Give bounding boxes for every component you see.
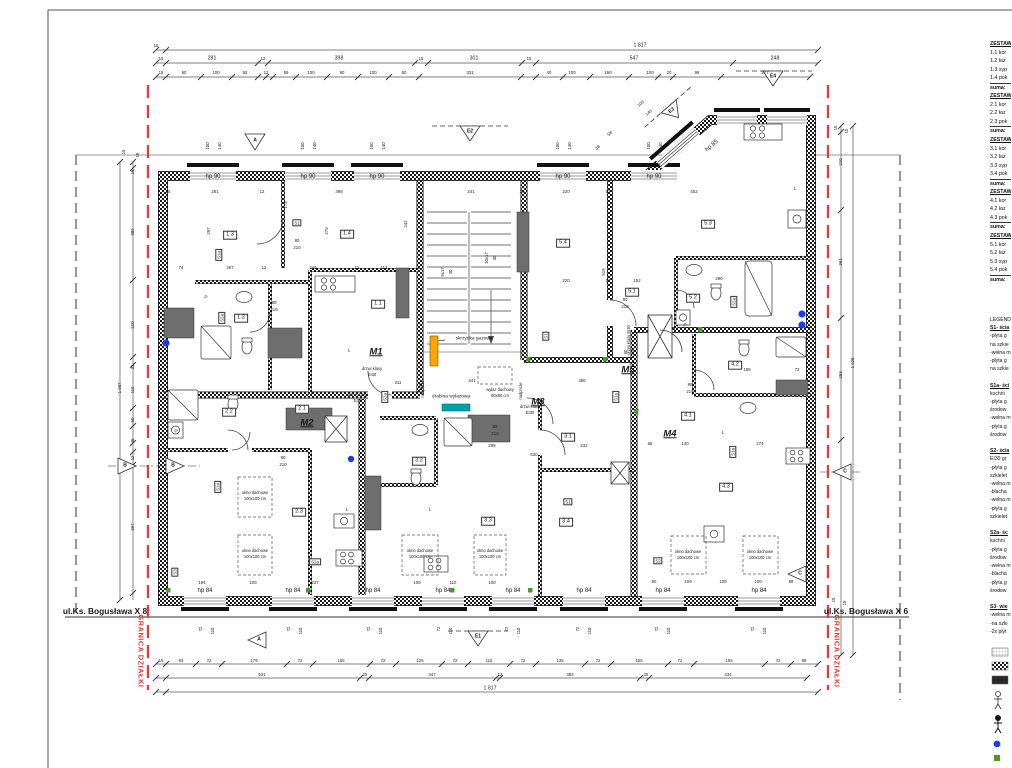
panel-line: S1- ścia [990,324,1011,332]
kitchen-sink [334,514,354,528]
panel-line: -wełna m [990,496,1011,504]
shower [201,326,231,359]
panel-line: środow [990,587,1011,595]
panel-line: S2a- śc [990,529,1011,537]
panel-line: 1.3 syp [990,66,1011,75]
panel-line: 5.2 łaz [990,249,1011,258]
panel-line: 1.4 pok [990,74,1011,83]
toilet [711,284,721,300]
panel-line: -wełna m [990,480,1011,488]
boundary-label-left: GRANICA DZIAŁKI [137,615,144,688]
panel-line: -2x płyt [990,628,1011,636]
shower [444,418,472,446]
panel-line: -płyta g [990,398,1011,406]
panel-line: 3.4 pok [990,170,1011,179]
panel-line: S2- ścia [990,447,1011,455]
panel-line: 3.3 syp [990,162,1011,171]
washbasin [686,265,702,276]
panel-line: 1.1 kor [990,49,1011,58]
washbasin [236,292,252,303]
toilet [739,340,749,356]
panel-line: 1.2 łaz [990,57,1011,66]
panel-line: S3- wie [990,603,1011,611]
panel-line: -płyta g [990,505,1011,513]
roof-marker-e1 [448,631,508,646]
panel-line: -płyta g [990,546,1011,554]
panel-line: -blacha [990,488,1011,496]
stove [315,276,355,292]
toilet [411,469,421,485]
panel-line: na szkie [990,365,1011,373]
panel-line: -blacha [990,570,1011,578]
panel-line: 4.1 kor [990,197,1011,206]
panel-line: środow [990,406,1011,414]
panel-line [990,595,1011,603]
washing-machine [168,422,183,438]
panel-line: ZESTAW [990,136,1011,145]
panel-line: suma: [990,275,1011,285]
person-icon [994,692,1002,710]
washbasin [740,403,756,414]
panel-line: środow [990,554,1011,562]
panel-line: -płyta g [990,423,1011,431]
panel-line: LEGENDA [990,316,1011,324]
panel-line: szkielet [990,472,1011,480]
panel-line: 3.1 kor [990,145,1011,154]
legend-lintel-square [994,755,1000,761]
toilet [242,338,252,354]
panel-line: 5.1 kor [990,241,1011,250]
shower [168,390,198,420]
toilet [228,395,238,411]
panel-line: -wełna m [990,562,1011,570]
panel-line: 4.3 pok [990,214,1011,223]
panel-line: -płyta g [990,464,1011,472]
panel-line: suma: [990,222,1011,232]
roof-marker-e4 [736,71,812,86]
washbasin [412,425,428,436]
panel-line: -wełna m [990,349,1011,357]
panel-line: -na szki [990,620,1011,628]
stove [336,550,362,566]
shower [776,337,806,357]
panel-line: -wełna m [990,414,1011,422]
legend-text: LEGENDAS1- ścia-płyta gna szkie-wełna m-… [990,316,1011,636]
panel-line: kuchni [990,537,1011,545]
panel-line: suma: [990,83,1011,93]
panel-line: kuchni [990,390,1011,398]
person-icon [994,716,1002,734]
panel-line: -płyta g [990,332,1011,340]
panel-line: 3.2 łaz [990,153,1011,162]
panel-line: EI30 gr [990,455,1011,463]
access-ladder [442,404,470,411]
boundary-label-right: GRANICA DZIAŁKI [833,615,840,688]
panel-line: -płyta g [990,579,1011,587]
stove [786,448,810,464]
panel-line: 5.4 pok [990,266,1011,275]
panel-line: -wełna m [990,611,1011,619]
panel-line: S1a- ści [990,382,1011,390]
panel-line: suma: [990,179,1011,189]
bathtub [745,261,772,316]
panel-line: na szkie [990,341,1011,349]
street-label-left: ul.Ks. Bogusława X 8 [63,607,147,615]
stove [424,556,448,572]
roof-marker-e2 [432,126,508,141]
panel-line: 4.2 łaz [990,205,1011,214]
panel-line: suma: [990,126,1011,136]
panel-line: 2.2 łaz [990,109,1011,118]
panel-line: ZESTAW [990,232,1011,241]
panel-line: 2.1 kor [990,101,1011,110]
panel-line: szkielet [990,513,1011,521]
kitchen-sink [704,526,724,542]
kitchen-sink [788,210,806,228]
panel-line: ZESTAW [990,40,1011,49]
panel-line: ZESTAW [990,188,1011,197]
washing-machine [676,310,690,325]
panel-line: ZESTAW [990,92,1011,101]
legend-symbols [992,648,1008,761]
panel-line [990,373,1011,381]
panel-line [990,521,1011,529]
stove [744,124,782,140]
panel-line: -płyta g [990,357,1011,365]
legend-gas-dot [994,741,1001,748]
panel-line: 2.3 pok [990,118,1011,127]
panel-line [990,439,1011,447]
plan-drawing [0,0,1012,768]
floor-plan-sheet: 151 817152811239815301155472481590100921… [0,0,1012,768]
panel-line: 5.3 syp [990,258,1011,267]
room-schedule-table: ZESTAW1.1 kor1.2 łaz1.3 syp1.4 poksuma:Z… [990,40,1011,284]
panel-line: środow [990,431,1011,439]
